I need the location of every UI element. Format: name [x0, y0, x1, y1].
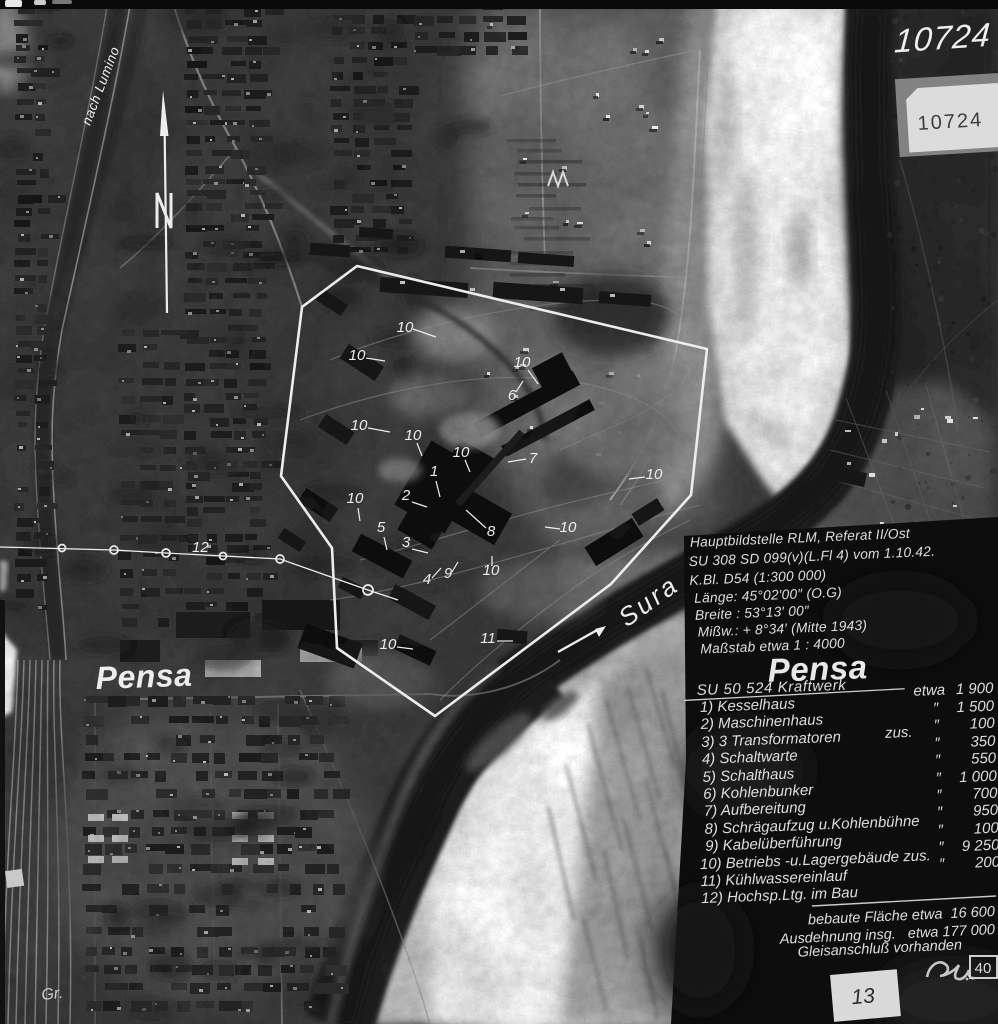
svg-text:10: 10 — [483, 562, 500, 579]
svg-text:Gr.: Gr. — [41, 985, 64, 1004]
svg-text:10: 10 — [349, 347, 366, 364]
svg-text:11: 11 — [480, 630, 496, 647]
svg-text:1 000: 1 000 — [959, 768, 998, 786]
svg-text:700: 700 — [972, 785, 998, 803]
svg-text:10: 10 — [646, 466, 663, 483]
svg-text:7: 7 — [529, 450, 538, 467]
svg-text:12: 12 — [192, 539, 209, 556]
svg-text:1: 1 — [430, 463, 438, 480]
svg-text:10: 10 — [397, 319, 414, 336]
svg-text:8: 8 — [487, 523, 496, 540]
svg-text:10: 10 — [560, 519, 577, 536]
svg-text:10: 10 — [351, 417, 368, 434]
svg-text:950: 950 — [973, 802, 998, 820]
svg-text:2: 2 — [401, 487, 411, 504]
svg-text:Pensa: Pensa — [95, 657, 193, 696]
svg-text:13: 13 — [850, 984, 876, 1009]
svg-text:10: 10 — [380, 636, 397, 653]
svg-text:200: 200 — [974, 854, 998, 872]
svg-text:10: 10 — [453, 444, 470, 461]
svg-text:350: 350 — [970, 733, 996, 751]
svg-text:9: 9 — [444, 565, 453, 582]
svg-text:10: 10 — [514, 354, 531, 371]
svg-text:6: 6 — [508, 387, 517, 404]
svg-text:3: 3 — [402, 534, 411, 551]
svg-text:100: 100 — [973, 820, 998, 838]
svg-text:5: 5 — [377, 519, 386, 536]
svg-text:10: 10 — [405, 427, 422, 444]
svg-text:etwa: etwa — [913, 682, 945, 700]
svg-text:zus.: zus. — [884, 724, 913, 742]
svg-text:100: 100 — [969, 715, 995, 733]
svg-text:40: 40 — [975, 960, 992, 977]
svg-text:10724: 10724 — [917, 109, 984, 135]
svg-text:550: 550 — [971, 750, 997, 768]
svg-text:9 250: 9 250 — [962, 837, 998, 855]
svg-text:10: 10 — [347, 490, 364, 507]
svg-text:1 900: 1 900 — [956, 680, 995, 698]
svg-text:1 500: 1 500 — [956, 698, 995, 716]
svg-text:4: 4 — [423, 571, 431, 588]
svg-text:10724: 10724 — [893, 17, 992, 61]
